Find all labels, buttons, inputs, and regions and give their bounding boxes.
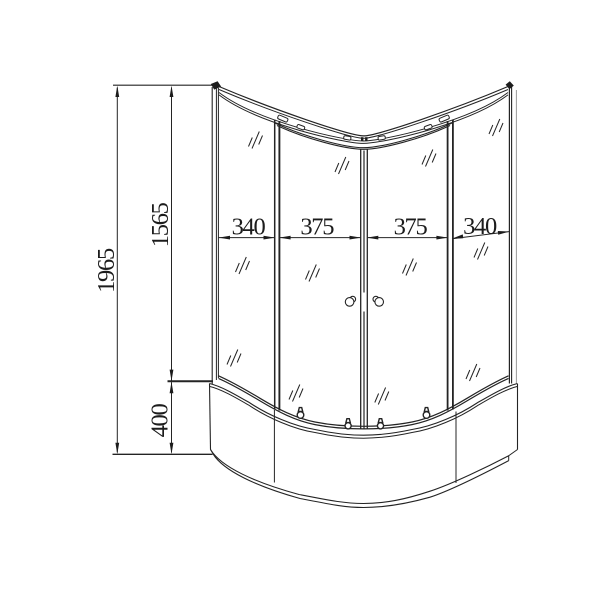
svg-text:375: 375 — [394, 214, 428, 241]
svg-text:340: 340 — [463, 213, 497, 240]
svg-text:1965: 1965 — [93, 248, 120, 293]
svg-text:1565: 1565 — [147, 202, 174, 247]
svg-text:400: 400 — [147, 404, 174, 438]
svg-text:375: 375 — [300, 214, 334, 241]
svg-text:340: 340 — [232, 214, 266, 241]
